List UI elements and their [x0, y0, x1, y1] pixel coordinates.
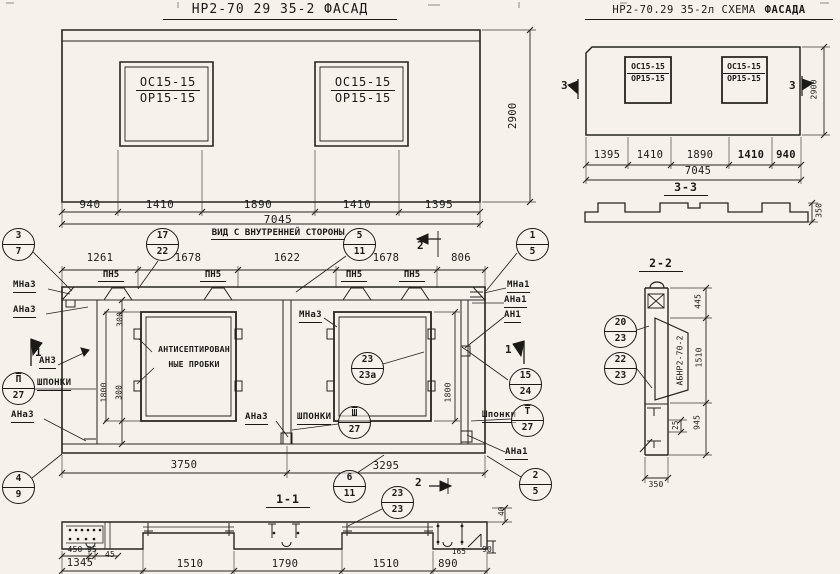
callout-bottom: 5 — [517, 245, 548, 260]
label-ana1: АНа1 — [504, 296, 527, 308]
note-antiseptic-line1: АНТИСЕПТИРОВАН — [151, 345, 237, 354]
note-antiseptic-line2: НЫЕ ПРОБКИ — [151, 360, 237, 369]
callout-bottom: 11 — [344, 245, 375, 260]
callout-I-27: Т 27 — [511, 404, 544, 437]
callout-20-23: 20 23 — [604, 315, 637, 348]
section-3-marker-left: 3 — [561, 80, 568, 92]
window-series-bottom: ОР15-15 — [727, 74, 761, 84]
dim-11-1510a: 1510 — [165, 559, 215, 571]
dim-3295: 3295 — [361, 461, 411, 473]
callout-top: 15 — [510, 369, 541, 385]
section-11-title: 1-1 — [266, 493, 310, 508]
dim-11-90: 90 — [477, 546, 497, 555]
dim-facade-total: 7045 — [253, 214, 303, 226]
callout-bottom: 27 — [512, 421, 543, 436]
dim-schema-total: 7045 — [673, 166, 723, 178]
window-series-top: ОС15-15 — [627, 63, 669, 74]
dim-22-350: 350 — [636, 481, 676, 490]
dim-300-top: 300 — [117, 299, 126, 339]
callout-17-22: 17 22 — [146, 228, 179, 261]
dim-3750: 3750 — [159, 460, 209, 472]
callout-top: Т — [512, 405, 543, 421]
callout-top: 23 — [352, 353, 383, 369]
dim-inner-1: 1261 — [75, 253, 125, 265]
window-series-bottom: ОР15-15 — [140, 91, 196, 105]
dim-facade-1: 940 — [65, 199, 115, 211]
callout-bottom: 23 — [382, 503, 413, 518]
window-series-top: ОС15-15 — [136, 76, 200, 91]
callout-bottom: 27 — [3, 389, 34, 404]
dim-facade-5: 1395 — [414, 199, 464, 211]
callout-3-7: 3 7 — [2, 228, 35, 261]
dim-schema-1: 1395 — [585, 150, 629, 162]
dim-schema-5: 940 — [764, 150, 808, 162]
section-1-marker-right: 1 — [505, 344, 512, 356]
dim-22-1510: 1510 — [696, 337, 705, 377]
callout-top: 1 — [517, 229, 548, 245]
dim-300-bottom: 300 — [116, 372, 125, 412]
section-3-marker-right: 3 — [789, 80, 796, 92]
label-mna3-left: МНа3 — [13, 281, 36, 293]
section-2-marker-bottom: 2 — [415, 477, 422, 489]
facade-title: НР2-70 29 35-2 ФАСАД — [163, 3, 397, 20]
callout-top: Ш — [339, 407, 370, 423]
dim-22-445: 445 — [695, 281, 704, 321]
dim-11-95: 95 — [84, 546, 100, 555]
callout-15-24: 15 24 — [509, 368, 542, 401]
label-pn5-1: ПН5 — [98, 271, 124, 282]
facade-window-1-label: ОС15-15 ОР15-15 — [133, 76, 203, 105]
dim-facade-height: 2900 — [508, 96, 520, 136]
schema-window-1-label: ОС15-15 ОР15-15 — [622, 63, 674, 84]
dim-11-1790: 1790 — [260, 559, 310, 571]
callout-top: П — [3, 373, 34, 389]
callout-5-11: 5 11 — [343, 228, 376, 261]
callout-1-5: 1 5 — [516, 228, 549, 261]
callout-top: 20 — [605, 316, 636, 332]
dim-schema-height: 2900 — [811, 69, 820, 109]
dim-11-1510b: 1510 — [361, 559, 411, 571]
callout-bottom: 5 — [520, 485, 551, 500]
callout-bottom: 7 — [3, 245, 34, 260]
dim-11-1345: 1345 — [55, 558, 105, 570]
dim-1800-right: 1800 — [445, 372, 454, 412]
callout-top: 23 — [382, 487, 413, 503]
dim-inner-3: 1622 — [262, 253, 312, 265]
dim-schema-3: 1890 — [678, 150, 722, 162]
callout-23-23a: 23 23а — [351, 352, 384, 385]
dim-facade-3: 1890 — [233, 199, 283, 211]
callout-top: 4 — [3, 472, 34, 488]
callout-6-11: 6 11 — [333, 470, 366, 503]
dim-facade-4: 1410 — [332, 199, 382, 211]
window-series-bottom: ОР15-15 — [335, 91, 391, 105]
dim-schema-2: 1410 — [628, 150, 672, 162]
schema-title-bold: ФАСАДА — [765, 5, 806, 17]
part-label-abnr: АБНР2-70-2 — [677, 320, 686, 400]
dim-inner-5: 806 — [436, 253, 486, 265]
dim-11-40: 40 — [498, 491, 506, 531]
callout-bottom: 11 — [334, 487, 365, 502]
label-pn5-4: ПН5 — [399, 271, 425, 282]
dim-1800-left: 1800 — [101, 372, 110, 412]
callout-II-27: П 27 — [2, 372, 35, 405]
schema-title-text: НР2-70.29 35-2л СХЕМА — [612, 5, 755, 17]
label-mna3-mid: МНа3 — [299, 311, 322, 323]
callout-top: 22 — [605, 353, 636, 369]
schema-window-2-label: ОС15-15 ОР15-15 — [718, 63, 770, 84]
callout-III-27: Ш 27 — [338, 406, 371, 439]
callout-4-9: 4 9 — [2, 471, 35, 504]
callout-bottom: 22 — [147, 245, 178, 260]
callout-bottom: 23а — [352, 369, 383, 384]
dim-facade-2: 1410 — [135, 199, 185, 211]
label-shponki-left: ШПОНКИ — [37, 379, 71, 391]
facade-window-2-label: ОС15-15 ОР15-15 — [328, 76, 398, 105]
callout-bottom: 27 — [339, 423, 370, 438]
drawing-sheet: НР2-70 29 35-2 ФАСАД ОС15-15 ОР15-15 ОС1… — [0, 0, 840, 574]
dim-22-945: 945 — [694, 402, 703, 442]
label-pn5-3: ПН5 — [341, 271, 367, 282]
dim-11-165: 165 — [447, 548, 471, 556]
label-shponki-mid: ШПОНКИ — [297, 413, 331, 425]
inner-view-title: ВИД С ВНУТРЕННЕЙ СТОРОНЫ — [211, 228, 345, 240]
label-ana3-left: АНа3 — [13, 306, 36, 318]
label-an1: АН1 — [504, 311, 521, 323]
label-ana3-lower: АНа3 — [11, 411, 34, 423]
label-ana3-mid: АНа3 — [245, 413, 268, 425]
callout-top: 5 — [344, 229, 375, 245]
label-pn5-2: ПН5 — [200, 271, 226, 282]
callout-top: 2 — [520, 469, 551, 485]
section-2-marker-top: 2 — [417, 240, 424, 252]
callout-top: 17 — [147, 229, 178, 245]
dim-22-25: 25 — [672, 405, 680, 445]
label-mna1: МНа1 — [507, 281, 530, 293]
callout-23-23: 23 23 — [381, 486, 414, 519]
callout-22-23: 22 23 — [604, 352, 637, 385]
callout-bottom: 9 — [3, 488, 34, 503]
window-series-top: ОС15-15 — [331, 76, 395, 91]
callout-bottom: 23 — [605, 369, 636, 384]
callout-2-5: 2 5 — [519, 468, 552, 501]
section-1-marker-left: 1 — [35, 347, 42, 359]
label-ana1-lower: АНа1 — [505, 448, 528, 460]
dim-11-890: 890 — [423, 559, 473, 571]
callout-top: 3 — [3, 229, 34, 245]
callout-top: 6 — [334, 471, 365, 487]
section-33-title: 3-3 — [664, 181, 708, 196]
callout-bottom: 24 — [510, 385, 541, 400]
section-22-title: 2-2 — [639, 257, 683, 272]
window-series-bottom: ОР15-15 — [631, 74, 665, 84]
schema-title: НР2-70.29 35-2л СХЕМА ФАСАДА — [585, 5, 833, 20]
callout-bottom: 23 — [605, 332, 636, 347]
dim-33-thickness: 350 — [816, 190, 825, 230]
window-series-top: ОС15-15 — [723, 63, 765, 74]
